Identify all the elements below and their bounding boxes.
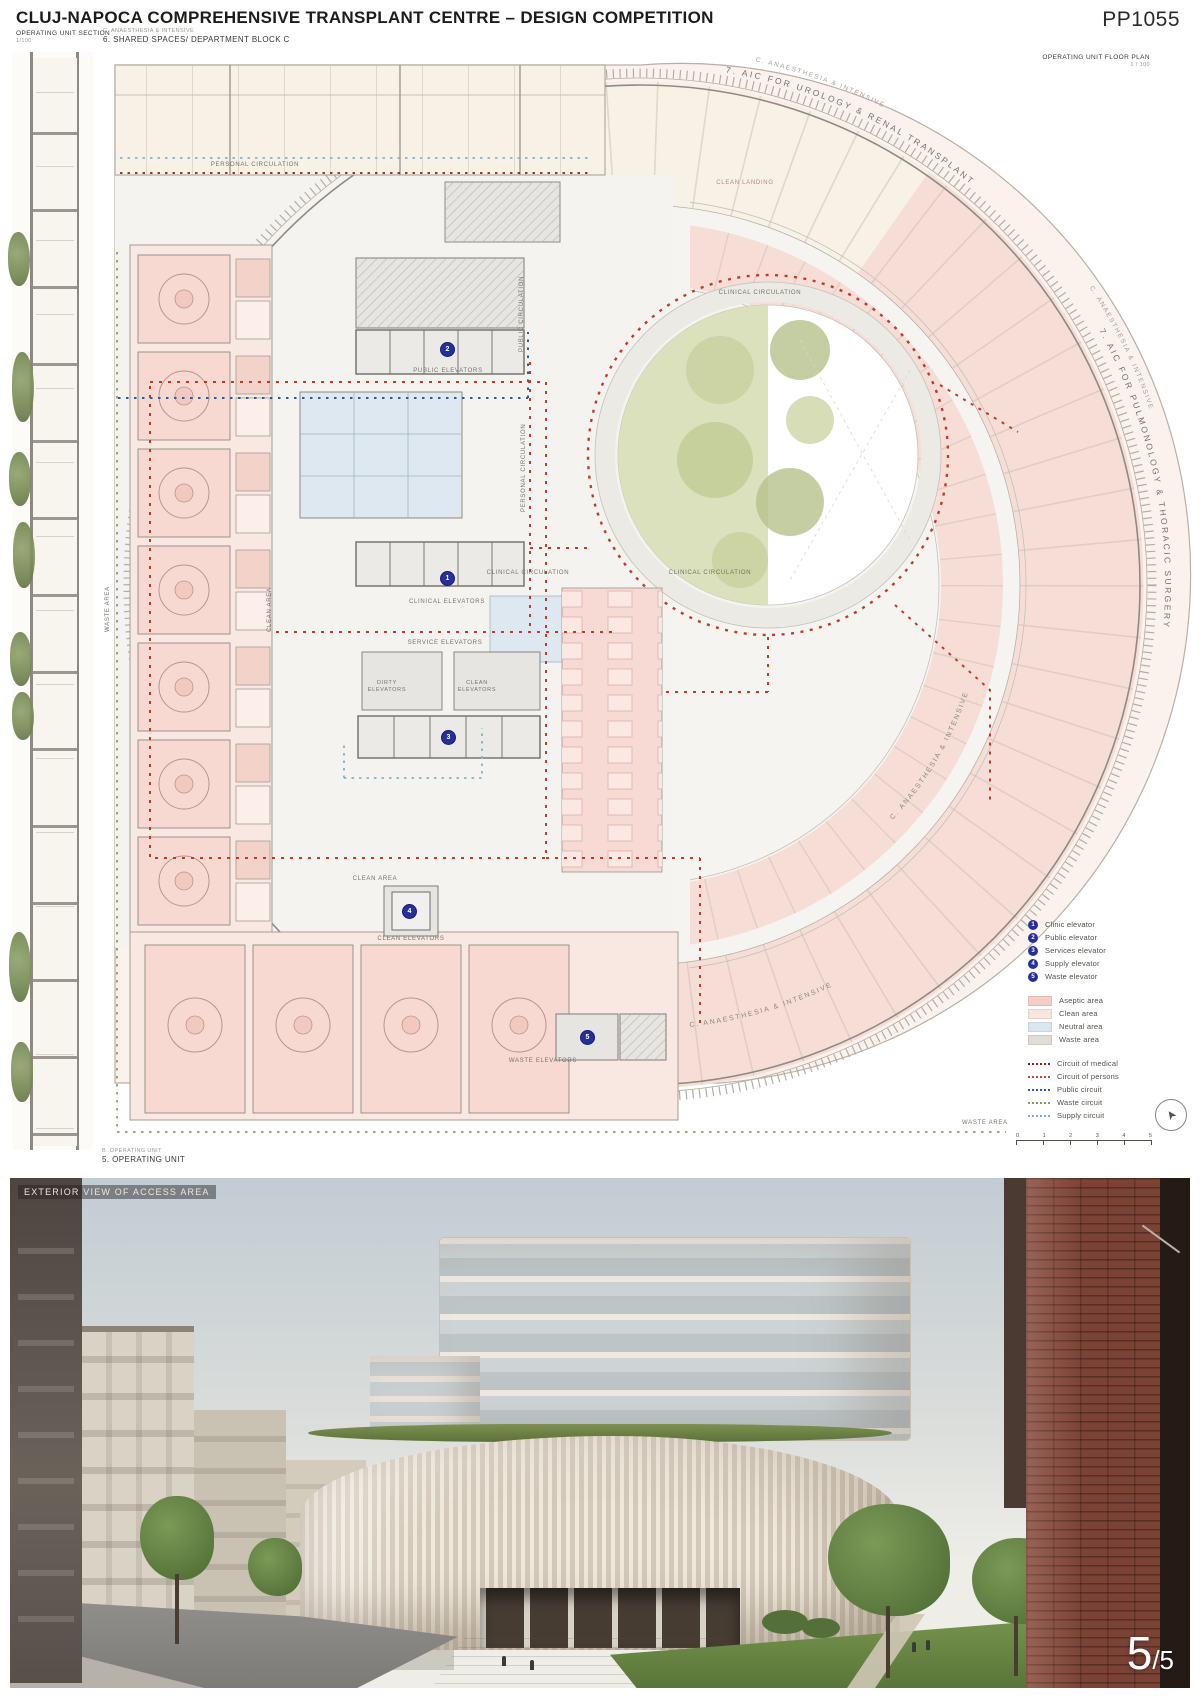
circuit-line (1028, 1102, 1050, 1104)
label-public-circulation: PUBLIC CIRCULATION (519, 276, 525, 352)
project-code: PP1055 (1102, 8, 1180, 32)
legend-row: Circuit of persons (1028, 1070, 1193, 1083)
legend-label: Supply elevator (1045, 959, 1100, 968)
legend-label: Services elevator (1045, 946, 1106, 955)
page-title: CLUJ-NAPOCA COMPREHENSIVE TRANSPLANT CEN… (16, 8, 714, 28)
person-silhouette (926, 1640, 930, 1650)
footer-category: B. OPERATING UNIT (102, 1148, 185, 1155)
elevator-badge-icon: 4 (1028, 959, 1038, 969)
page-number: 5 /5 (1127, 1626, 1174, 1680)
scale-ruler (1016, 1140, 1152, 1145)
legend-label: Clean area (1059, 1009, 1098, 1018)
legend-row: Aseptic area (1028, 994, 1193, 1007)
legend-label: Neutral area (1059, 1022, 1103, 1031)
scale-tick: 1 (1043, 1133, 1046, 1139)
photo-caption: EXTERIOR VIEW OF ACCESS AREA (18, 1185, 216, 1199)
legend-row: 2Public elevator (1028, 931, 1193, 944)
section-scale: 1/100 (16, 38, 110, 45)
tree-icon (248, 1538, 302, 1596)
label-waste-area-bottom: WASTE AREA (962, 1120, 1008, 1126)
legend-label: Aseptic area (1059, 996, 1103, 1005)
photo-tower-slab (440, 1238, 910, 1440)
label-waste-area-left: WASTE AREA (105, 586, 111, 632)
label-clean-elevators-core: CLEAN ELEVATORS (454, 680, 500, 694)
label-clinical-circulation-right: CLINICAL CIRCULATION (650, 570, 770, 576)
area-swatch (1028, 1022, 1052, 1032)
left-operating-wing (130, 245, 272, 947)
circuit-line (1028, 1089, 1050, 1091)
tree-icon (12, 352, 34, 422)
legend-row: Waste area (1028, 1033, 1193, 1046)
legend-row: 4Supply elevator (1028, 957, 1193, 970)
north-arrow-icon: ➤ (1155, 1099, 1187, 1131)
legend-label: Waste circuit (1057, 1098, 1102, 1107)
tree-icon (140, 1496, 214, 1580)
circuit-line (1028, 1063, 1050, 1065)
legend-areas: Aseptic area Clean area Neutral area Was… (1028, 994, 1193, 1046)
elevator-badge-icon: 3 (1028, 946, 1038, 956)
footer-title: 5. OPERATING UNIT (102, 1155, 185, 1165)
marker-supply-elevator: 4 (402, 904, 417, 919)
area-swatch (1028, 996, 1052, 1006)
page-number-total: /5 (1152, 1645, 1174, 1676)
label-clinical-elevators: CLINICAL ELEVATORS (392, 599, 502, 605)
legend-elevators: 1Clinic elevator 2Public elevator 3Servi… (1028, 918, 1193, 983)
section-caption: OPERATING UNIT SECTION 1/100 (16, 30, 110, 45)
competition-board: CLUJ-NAPOCA COMPREHENSIVE TRANSPLANT CEN… (0, 0, 1200, 1698)
bush-icon (802, 1618, 840, 1638)
label-service-elevators: SERVICE ELEVATORS (390, 640, 500, 646)
legend-label: Supply circuit (1057, 1111, 1104, 1120)
legend-row: 5Waste elevator (1028, 970, 1193, 983)
tree-trunk (175, 1574, 179, 1644)
legend-row: Neutral area (1028, 1020, 1193, 1033)
footer-caption: B. OPERATING UNIT 5. OPERATING UNIT (102, 1148, 185, 1166)
legend-row: 1Clinic elevator (1028, 918, 1193, 931)
tree-icon (10, 632, 32, 686)
legend-row: 3Services elevator (1028, 944, 1193, 957)
bush-icon (762, 1610, 808, 1634)
label-clean-area-left: CLEAN AREA (267, 587, 273, 632)
circuit-line (1028, 1115, 1050, 1117)
tree-icon (828, 1504, 950, 1616)
scale-tick: 5 (1149, 1133, 1152, 1139)
tree-icon (11, 1042, 33, 1102)
person-silhouette (530, 1660, 534, 1670)
elevator-badge-icon: 5 (1028, 972, 1038, 982)
photo-shadow-gap (1004, 1178, 1028, 1508)
legend-label: Public circuit (1057, 1085, 1102, 1094)
tree-trunk (1014, 1616, 1018, 1676)
section-furniture (36, 62, 74, 1142)
photo-dark-edge (1160, 1178, 1190, 1688)
elevator-badge-icon: 2 (1028, 933, 1038, 943)
label-personal-circulation-top: PERSONAL CIRCULATION (180, 162, 330, 168)
scale-tick: 4 (1122, 1133, 1125, 1139)
page-number-current: 5 (1127, 1626, 1153, 1680)
scale-bar: 0 1 2 3 4 5 (1016, 1133, 1152, 1145)
label-waste-elevators: WASTE ELEVATORS (498, 1058, 588, 1064)
legend-label: Waste elevator (1045, 972, 1098, 981)
operating-unit-section-drawing (12, 52, 94, 1150)
person-silhouette (912, 1642, 916, 1652)
label-clean-area-bottom: CLEAN AREA (320, 876, 430, 882)
legend-row: Public circuit (1028, 1083, 1193, 1096)
marker-public-elevator: 2 (440, 342, 455, 357)
label-personal-circulation-side: PERSONAL CIRCULATION (521, 424, 527, 512)
tree-trunk (886, 1606, 890, 1678)
tree-icon (8, 232, 30, 286)
circuit-line (1028, 1076, 1050, 1078)
legend-label: Public elevator (1045, 933, 1097, 942)
scale-numbers: 0 1 2 3 4 5 (1016, 1133, 1152, 1139)
photo-foreground-windows (18, 1208, 74, 1628)
label-clean-landing: CLEAN LANDING (690, 180, 800, 186)
legend-label: Circuit of persons (1057, 1072, 1119, 1081)
tree-icon (12, 692, 34, 740)
marker-clinic-elevator: 1 (440, 571, 455, 586)
person-silhouette (502, 1656, 506, 1666)
scale-tick: 2 (1069, 1133, 1072, 1139)
label-dirty-elevators: DIRTY ELEVATORS (364, 680, 410, 694)
area-swatch (1028, 1035, 1052, 1045)
marker-services-elevator: 3 (441, 730, 456, 745)
legend-row: Circuit of medical (1028, 1057, 1193, 1070)
label-public-elevators: PUBLIC ELEVATORS (396, 368, 500, 374)
tree-icon (9, 452, 31, 506)
tree-icon (9, 932, 31, 1002)
legend-label: Circuit of medical (1057, 1059, 1118, 1068)
section-label: OPERATING UNIT SECTION (16, 30, 110, 38)
tree-icon (13, 522, 35, 588)
legend-label: Waste area (1059, 1035, 1099, 1044)
marker-waste-elevator: 5 (580, 1030, 595, 1045)
legend-row: Clean area (1028, 1007, 1193, 1020)
elevator-badge-icon: 1 (1028, 920, 1038, 930)
plan-category: C. ANAESTHESIA & INTENSIVE (103, 28, 290, 35)
label-clinical-circulation-left: CLINICAL CIRCULATION (468, 570, 588, 576)
legend-label: Clinic elevator (1045, 920, 1095, 929)
scale-tick: 3 (1096, 1133, 1099, 1139)
label-clean-elevators: CLEAN ELEVATORS (366, 936, 456, 942)
exterior-render: EXTERIOR VIEW OF ACCESS AREA 5 /5 (10, 1178, 1190, 1688)
floor-plan-drawing: C. ANAESTHESIA & INTENSIVE 7. AIC FOR UR… (100, 40, 1100, 1160)
scale-tick: 0 (1016, 1133, 1019, 1139)
label-clinical-circulation-top: CLINICAL CIRCULATION (700, 290, 820, 296)
area-swatch (1028, 1009, 1052, 1019)
